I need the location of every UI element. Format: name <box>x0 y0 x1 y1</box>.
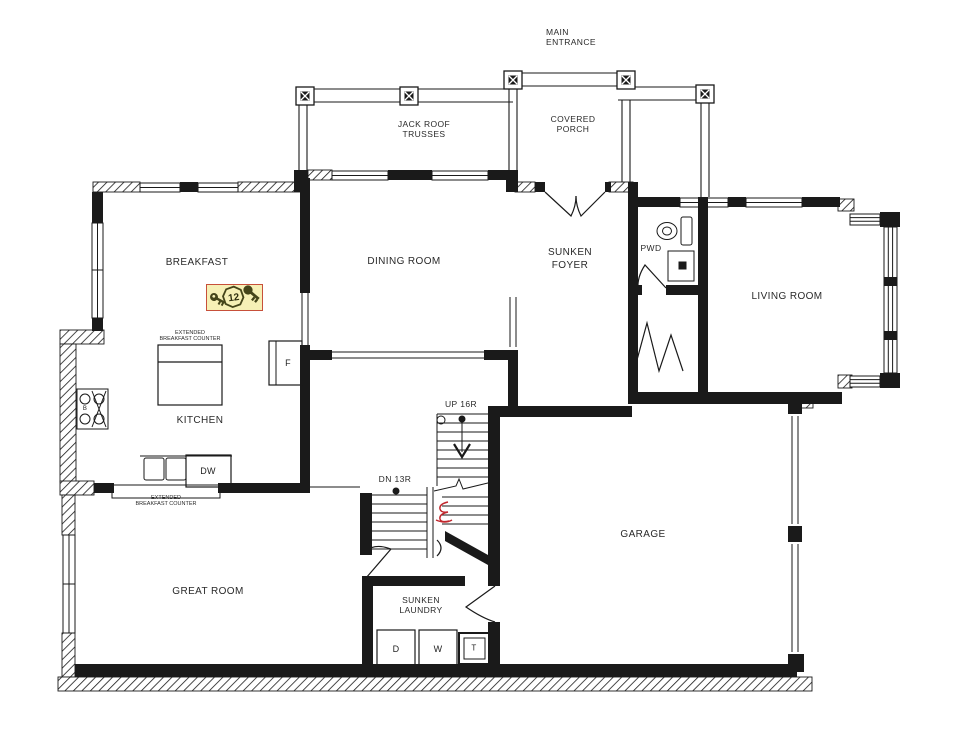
sunken-laundry-label: SUNKEN LAUNDRY <box>399 595 442 615</box>
svg-text:12: 12 <box>227 292 240 305</box>
main-entrance-label: MAIN ENTRANCE <box>546 27 596 47</box>
dishwasher-letter: DW <box>200 466 216 476</box>
sunken-foyer-label: SUNKEN FOYER <box>548 247 592 272</box>
jack-roof-trusses-label: JACK ROOF TRUSSES <box>398 119 450 139</box>
stove <box>77 389 108 429</box>
tub-letter: T <box>471 644 476 653</box>
floorplan-linework <box>0 0 979 732</box>
toilet <box>657 217 692 245</box>
living-room-label: LIVING ROOM <box>751 291 822 304</box>
floorplan-page: MAIN ENTRANCE JACK ROOF TRUSSES COVERED … <box>0 0 979 732</box>
down-stairs-label: DN 13R <box>379 474 412 484</box>
pwd-label: PWD <box>640 243 661 253</box>
burners-letter: B <box>83 406 87 412</box>
dining-room-label: DINING ROOM <box>367 256 440 269</box>
fridge-letter: F <box>285 358 291 368</box>
fixtures <box>77 217 694 668</box>
key-marker-glyphs: 12 <box>207 285 261 309</box>
pwd-sink <box>668 251 694 281</box>
kitchen-island <box>158 345 222 405</box>
covered-porch-label: COVERED PORCH <box>551 114 596 134</box>
badge-12: 12 <box>222 286 245 309</box>
windows <box>63 171 897 652</box>
kitchen-label: KITCHEN <box>177 415 224 428</box>
up-stairs-label: UP 16R <box>445 399 477 409</box>
breakfast-label: BREAKFAST <box>166 257 229 270</box>
garage-label: GARAGE <box>620 529 665 542</box>
great-room-label: GREAT ROOM <box>172 586 243 599</box>
key-marker[interactable]: 12 <box>206 284 263 311</box>
stairs-red-annotation <box>436 502 452 522</box>
hatched-walls <box>58 170 854 691</box>
peninsula-counter-label: EXTENDED BREAKFAST COUNTER <box>135 495 196 508</box>
kitchen-sink <box>144 458 164 480</box>
island-counter-label: EXTENDED BREAKFAST COUNTER <box>159 330 220 343</box>
dryer-letter: D <box>393 644 400 654</box>
washer-letter: W <box>434 644 443 654</box>
stairs <box>310 414 492 565</box>
key-icon <box>241 285 261 303</box>
